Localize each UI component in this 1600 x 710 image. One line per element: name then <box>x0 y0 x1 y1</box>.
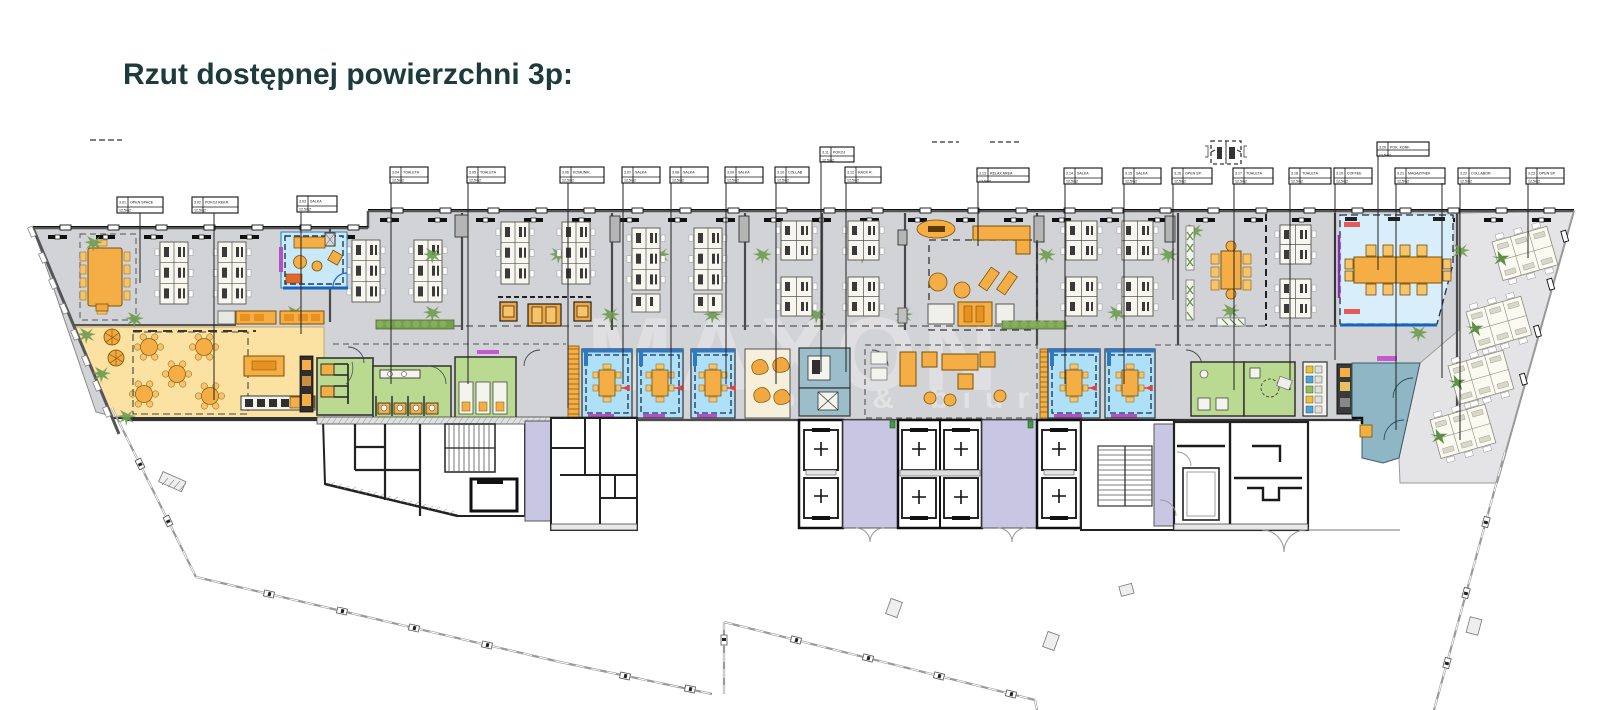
svg-text:COLLABOR.: COLLABOR. <box>1471 172 1492 176</box>
svg-text:3.21: 3.21 <box>1397 172 1404 176</box>
svg-text:12,5m2: 12,5m2 <box>194 209 206 213</box>
svg-text:12,5m2: 12,5m2 <box>847 179 859 183</box>
svg-text:3.16: 3.16 <box>1174 172 1181 176</box>
svg-text:3.09: 3.09 <box>727 171 734 175</box>
svg-text:3.05: 3.05 <box>469 171 476 175</box>
svg-text:3.08: 3.08 <box>672 171 679 175</box>
svg-text:COFFEE: COFFEE <box>1347 172 1362 176</box>
svg-text:12,5m2: 12,5m2 <box>299 208 311 212</box>
svg-text:POK. KONF.: POK. KONF. <box>1390 146 1410 150</box>
svg-text:3.10: 3.10 <box>777 171 784 175</box>
svg-text:3.01: 3.01 <box>119 201 126 205</box>
svg-text:3.03: 3.03 <box>299 200 306 204</box>
svg-text:OPEN SP.: OPEN SP. <box>1539 172 1556 176</box>
svg-text:POKOJ REKR.: POKOJ REKR. <box>205 201 229 205</box>
svg-text:KOMUNIK.: KOMUNIK. <box>573 171 591 175</box>
svg-text:3.14: 3.14 <box>1066 172 1073 176</box>
svg-text:TOALETA: TOALETA <box>480 171 497 175</box>
svg-text:12,5m2: 12,5m2 <box>624 179 636 183</box>
svg-text:3.12: 3.12 <box>847 171 854 175</box>
svg-text:TOALETA: TOALETA <box>1246 172 1263 176</box>
svg-text:12,5m2: 12,5m2 <box>979 180 991 184</box>
svg-text:SALKA: SALKA <box>683 171 695 175</box>
svg-text:OPEN SP.: OPEN SP. <box>1185 172 1202 176</box>
svg-text:POKOJ: POKOJ <box>833 151 845 155</box>
svg-text:dom & biuro: dom & biuro <box>745 382 1076 415</box>
svg-text:3.07: 3.07 <box>624 171 631 175</box>
svg-text:3.17: 3.17 <box>1235 172 1242 176</box>
svg-text:12,5m2: 12,5m2 <box>1379 154 1391 158</box>
svg-text:12,5m2: 12,5m2 <box>1291 180 1303 184</box>
svg-text:SALKA: SALKA <box>1136 172 1148 176</box>
svg-text:3.18: 3.18 <box>1291 172 1298 176</box>
svg-text:3.11: 3.11 <box>822 151 829 155</box>
svg-text:12,5m2: 12,5m2 <box>1066 180 1078 184</box>
svg-text:TOALETA: TOALETA <box>1302 172 1319 176</box>
svg-text:12,5m2: 12,5m2 <box>119 209 131 213</box>
svg-text:SALKA: SALKA <box>1077 172 1089 176</box>
svg-text:3.02: 3.02 <box>194 201 201 205</box>
svg-text:12,5m2: 12,5m2 <box>1460 180 1472 184</box>
svg-text:12,5m2: 12,5m2 <box>822 159 834 163</box>
svg-text:12,5m2: 12,5m2 <box>727 179 739 183</box>
svg-text:COLLAB: COLLAB <box>788 171 803 175</box>
svg-text:3.15: 3.15 <box>1125 172 1132 176</box>
svg-text:SALKA: SALKA <box>310 200 322 204</box>
svg-text:12,5m2: 12,5m2 <box>1528 180 1540 184</box>
svg-text:RACK R.: RACK R. <box>858 171 873 175</box>
svg-text:12,5m2: 12,5m2 <box>672 179 684 183</box>
svg-text:OPEN SPACE: OPEN SPACE <box>130 201 154 205</box>
svg-text:12,5m2: 12,5m2 <box>1235 180 1247 184</box>
svg-text:12,5m2: 12,5m2 <box>469 179 481 183</box>
svg-text:TOALETA: TOALETA <box>403 171 420 175</box>
svg-text:12,5m2: 12,5m2 <box>1125 180 1137 184</box>
svg-text:MAGAZYNEK: MAGAZYNEK <box>1408 172 1431 176</box>
svg-text:SALKA: SALKA <box>635 171 647 175</box>
svg-text:3.19: 3.19 <box>1336 172 1343 176</box>
svg-text:12,5m2: 12,5m2 <box>562 179 574 183</box>
svg-text:SALKA: SALKA <box>738 171 750 175</box>
svg-text:12,5m2: 12,5m2 <box>777 179 789 183</box>
svg-text:RELAX AREA: RELAX AREA <box>990 172 1013 176</box>
svg-text:12,5m2: 12,5m2 <box>1174 180 1186 184</box>
svg-text:12,5m2: 12,5m2 <box>1397 180 1409 184</box>
svg-text:3.20: 3.20 <box>1379 146 1386 150</box>
svg-text:12,5m2: 12,5m2 <box>392 179 404 183</box>
svg-text:3.04: 3.04 <box>392 171 399 175</box>
svg-text:3.22: 3.22 <box>1460 172 1467 176</box>
svg-text:3.13: 3.13 <box>979 172 986 176</box>
svg-text:3.06: 3.06 <box>562 171 569 175</box>
svg-text:3.23: 3.23 <box>1528 172 1535 176</box>
svg-text:12,5m2: 12,5m2 <box>1336 180 1348 184</box>
svg-text:Rzut dostępnej powierzchni 3p:: Rzut dostępnej powierzchni 3p: <box>123 58 573 91</box>
